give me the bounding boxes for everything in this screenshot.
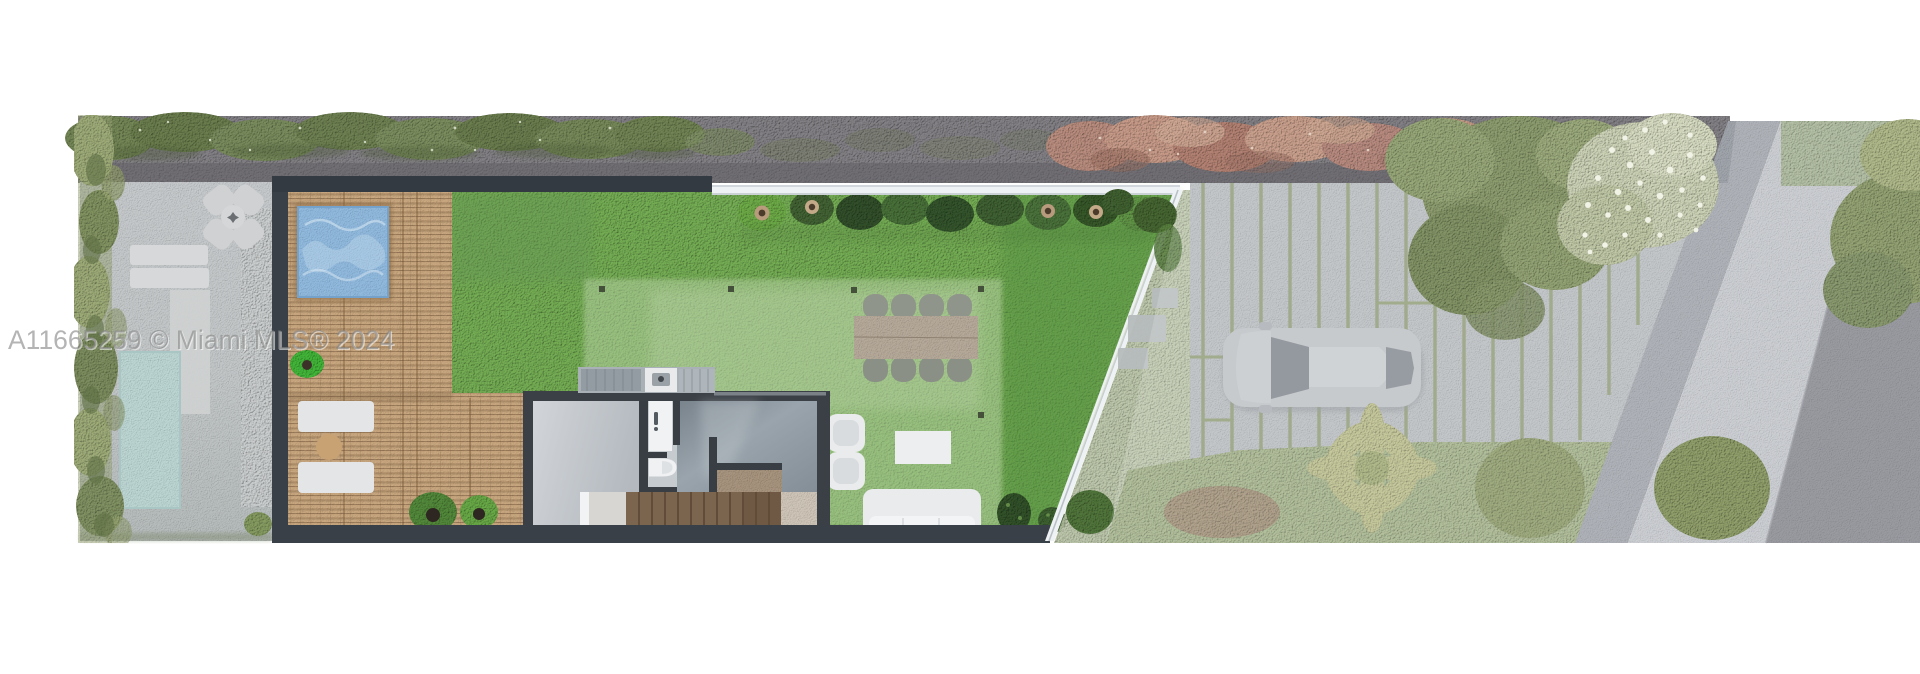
svg-text:A11665259 © Miami MLS® 2024: A11665259 © Miami MLS® 2024 <box>8 325 394 355</box>
